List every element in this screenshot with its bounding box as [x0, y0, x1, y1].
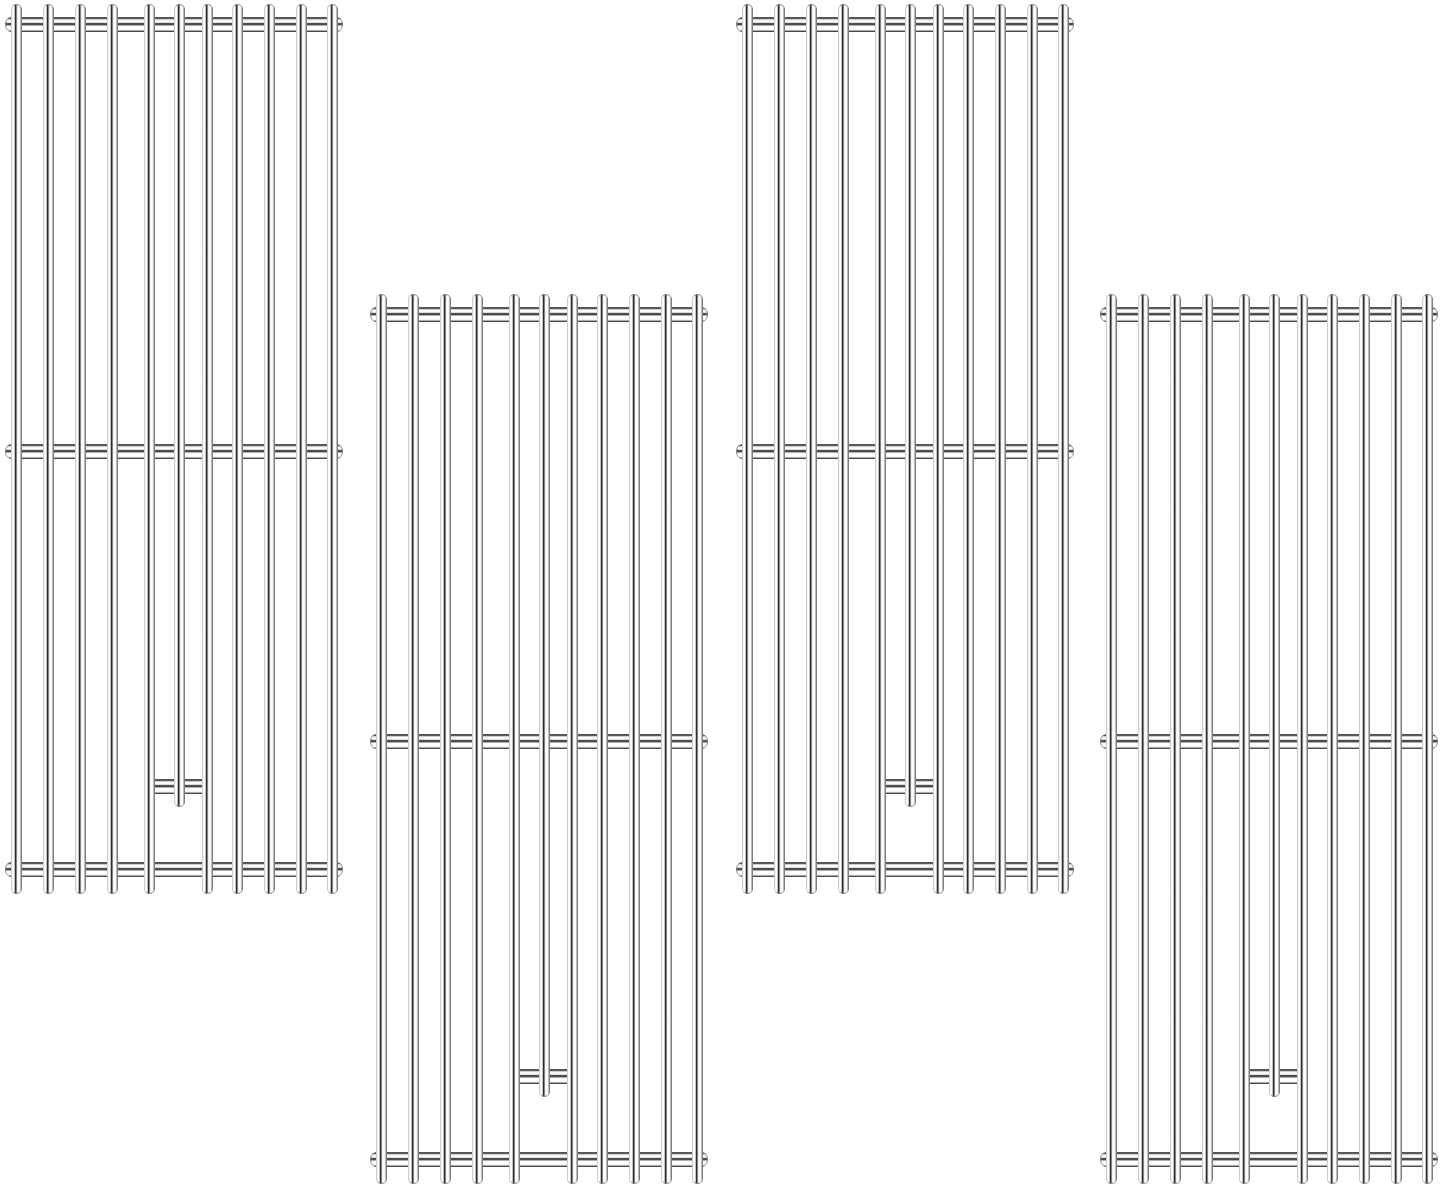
steel-rod-8	[597, 294, 608, 1184]
crossbar-support-3	[5, 862, 343, 877]
steel-rod-5	[1239, 294, 1250, 1184]
steel-rod-4	[838, 4, 849, 894]
steel-rod-7	[202, 4, 213, 894]
steel-rod-9	[629, 294, 640, 1184]
steel-rod-5	[875, 4, 886, 894]
short-steel-rod	[539, 294, 550, 1097]
steel-rod-3	[75, 4, 86, 894]
steel-rod-10	[1027, 4, 1038, 894]
steel-rod-9	[1359, 294, 1370, 1184]
steel-rod-4	[1202, 294, 1213, 1184]
steel-rod-4	[107, 4, 118, 894]
steel-rod-9	[995, 4, 1006, 894]
steel-rod-11	[1058, 4, 1069, 894]
steel-rod-2	[408, 294, 419, 1184]
steel-rod-2	[774, 4, 785, 894]
crossbar-support-3	[736, 862, 1074, 877]
steel-rod-3	[1170, 294, 1181, 1184]
steel-rod-11	[1422, 294, 1433, 1184]
steel-rod-9	[264, 4, 275, 894]
grate-3	[736, 4, 1074, 894]
short-steel-rod	[174, 4, 185, 807]
grate-2	[370, 294, 708, 1184]
crossbar-support-3	[370, 1152, 708, 1167]
steel-rod-10	[1391, 294, 1402, 1184]
steel-rod-10	[661, 294, 672, 1184]
product-photo	[0, 0, 1445, 1192]
steel-rod-10	[296, 4, 307, 894]
steel-rod-8	[232, 4, 243, 894]
short-steel-rod	[905, 4, 916, 807]
steel-rod-1	[376, 294, 387, 1184]
steel-rod-2	[43, 4, 54, 894]
steel-rod-7	[933, 4, 944, 894]
steel-rod-1	[742, 4, 753, 894]
grate-4	[1100, 294, 1438, 1184]
steel-rod-1	[1106, 294, 1117, 1184]
steel-rod-3	[440, 294, 451, 1184]
short-steel-rod	[1269, 294, 1280, 1097]
steel-rod-11	[327, 4, 338, 894]
steel-rod-1	[11, 4, 22, 894]
crossbar-support-3	[1100, 1152, 1438, 1167]
steel-rod-8	[1327, 294, 1338, 1184]
steel-rod-5	[509, 294, 520, 1184]
steel-rod-8	[963, 4, 974, 894]
steel-rod-2	[1138, 294, 1149, 1184]
steel-rod-5	[144, 4, 155, 894]
steel-rod-4	[472, 294, 483, 1184]
steel-rod-3	[806, 4, 817, 894]
steel-rod-11	[692, 294, 703, 1184]
steel-rod-7	[567, 294, 578, 1184]
grate-1	[5, 4, 343, 894]
steel-rod-7	[1297, 294, 1308, 1184]
